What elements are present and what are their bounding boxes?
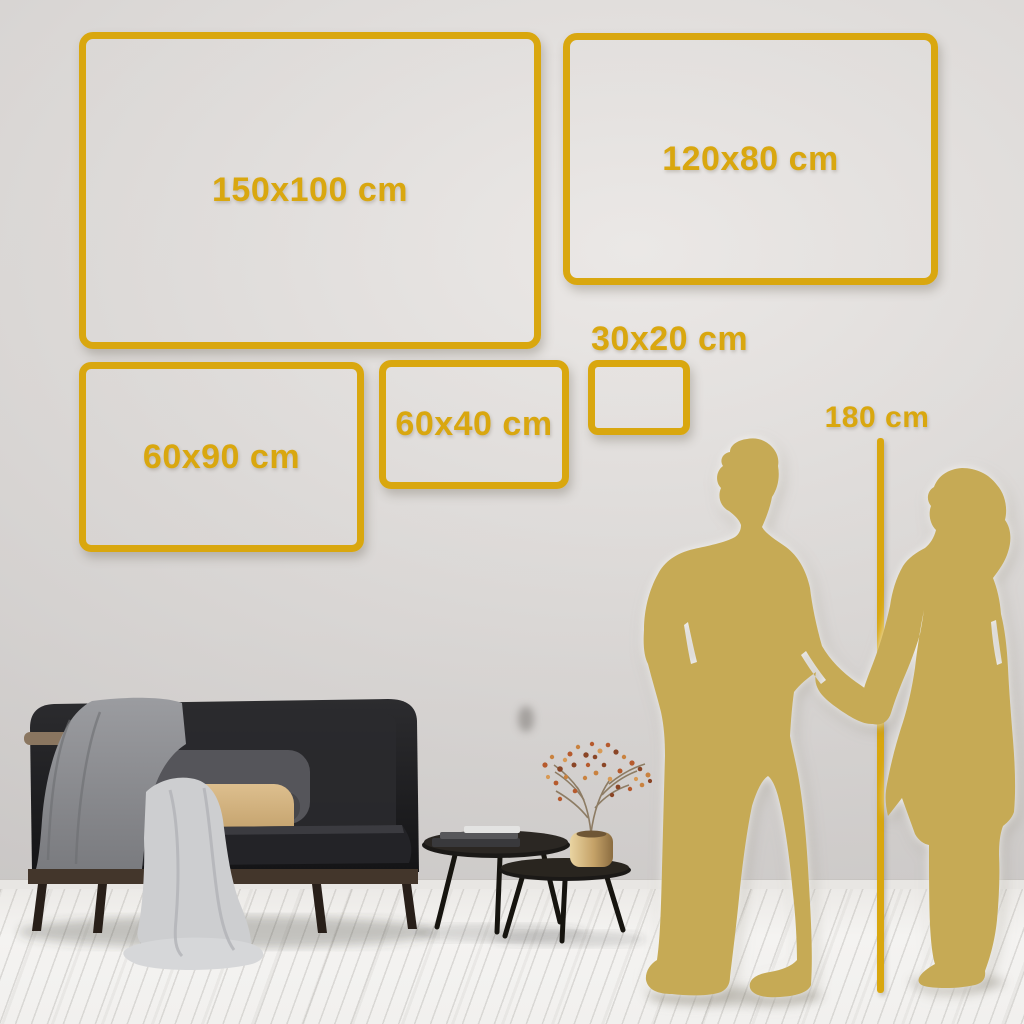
size-frame-120x80: 120x80 cm [563,33,938,285]
sofa-illustration [10,690,440,980]
woman-silhouette [860,468,1015,988]
size-frame-30x20 [588,360,690,435]
couple-silhouette [600,425,1024,1024]
wall-smudge [518,706,534,732]
size-frame-60x90-label: 60x90 cm [143,438,300,477]
size-frame-60x40-label: 60x40 cm [395,405,552,444]
sofa-cloth-pool [123,938,263,970]
books [432,826,520,847]
size-frame-30x20-label: 30x20 cm [591,320,748,359]
size-frame-120x80-label: 120x80 cm [662,140,839,179]
size-frame-60x40: 60x40 cm [379,360,569,489]
size-frame-150x100-label: 150x100 cm [212,171,408,210]
size-frame-150x100: 150x100 cm [79,32,541,349]
size-frame-60x90: 60x90 cm [79,362,364,552]
size-guide-scene: 150x100 cm 120x80 cm 60x90 cm 60x40 cm 3… [0,0,1024,1024]
man-silhouette [644,438,884,997]
